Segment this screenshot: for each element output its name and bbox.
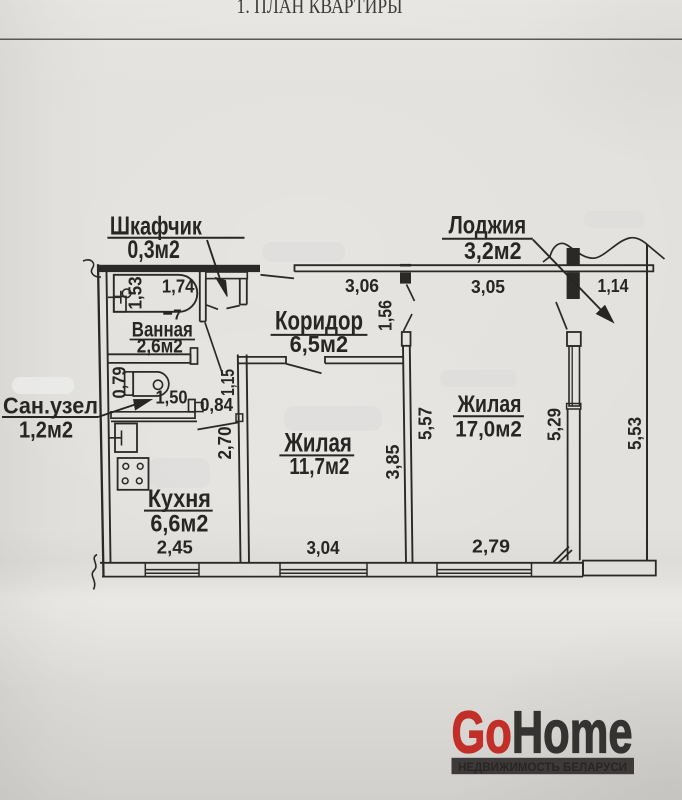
svg-text:НЕДВИЖИМОСТЬ БЕЛАРУСИ: НЕДВИЖИМОСТЬ БЕЛАРУСИ bbox=[458, 760, 627, 774]
svg-text:3,04: 3,04 bbox=[307, 537, 341, 558]
svg-text:1,15: 1,15 bbox=[217, 369, 238, 396]
svg-text:1,50: 1,50 bbox=[156, 387, 188, 408]
svg-text:1. ПЛАН КВАРТИРЫ: 1. ПЛАН КВАРТИРЫ bbox=[237, 0, 403, 18]
svg-text:1,14: 1,14 bbox=[598, 275, 630, 296]
svg-text:2,45: 2,45 bbox=[157, 536, 193, 557]
svg-text:Кухня: Кухня bbox=[148, 485, 211, 513]
svg-text:1,56: 1,56 bbox=[375, 300, 396, 331]
svg-text:2,79: 2,79 bbox=[472, 536, 510, 557]
svg-text:11,7м2: 11,7м2 bbox=[289, 453, 349, 479]
svg-text:3,85: 3,85 bbox=[382, 445, 403, 480]
svg-text:3,06: 3,06 bbox=[345, 275, 379, 296]
svg-text:5,57: 5,57 bbox=[414, 407, 435, 440]
svg-text:3,05: 3,05 bbox=[471, 276, 505, 297]
svg-text:7: 7 bbox=[173, 307, 181, 324]
svg-text:3,2м2: 3,2м2 bbox=[464, 238, 522, 265]
svg-text:1,2м2: 1,2м2 bbox=[19, 417, 73, 443]
svg-text:0,3м2: 0,3м2 bbox=[127, 236, 179, 264]
svg-text:5,29: 5,29 bbox=[543, 408, 564, 441]
svg-text:0,79: 0,79 bbox=[109, 367, 130, 399]
svg-text:6,6м2: 6,6м2 bbox=[150, 510, 208, 537]
svg-text:Сан.узел: Сан.узел bbox=[3, 393, 98, 419]
svg-text:17,0м2: 17,0м2 bbox=[455, 416, 522, 441]
svg-text:Лоджия: Лоджия bbox=[449, 212, 526, 240]
svg-text:2,70: 2,70 bbox=[214, 427, 235, 460]
svg-text:1,74: 1,74 bbox=[162, 276, 195, 297]
svg-text:0,84: 0,84 bbox=[200, 394, 234, 415]
svg-text:GoHome: GoHome bbox=[452, 699, 633, 766]
svg-text:1,53: 1,53 bbox=[125, 277, 146, 310]
svg-text:Жилая: Жилая bbox=[457, 391, 522, 418]
svg-text:5,53: 5,53 bbox=[624, 417, 645, 450]
